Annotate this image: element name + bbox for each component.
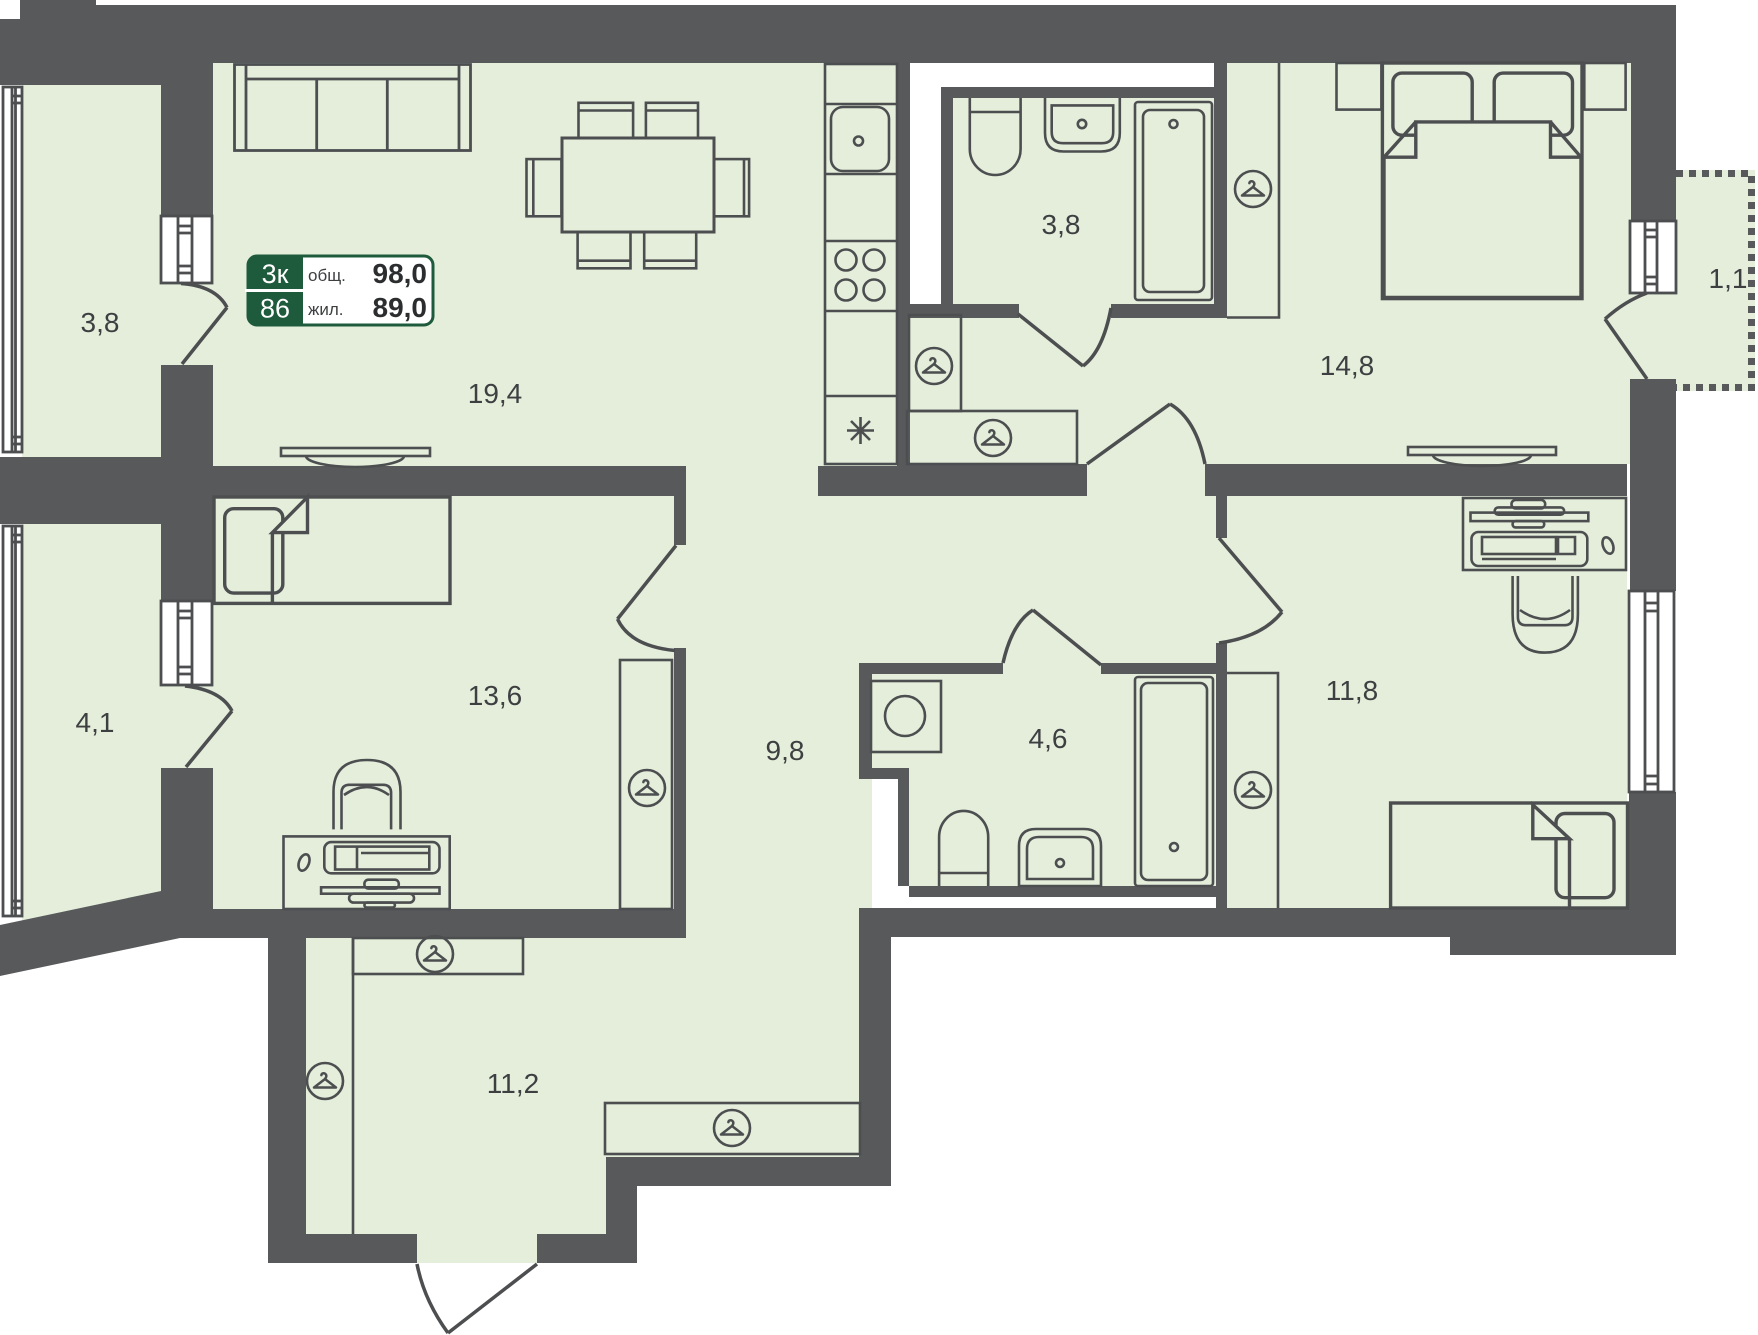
svg-text:14,8: 14,8 [1320,350,1375,381]
svg-text:98,0: 98,0 [373,258,428,289]
svg-text:3,8: 3,8 [81,307,120,338]
svg-text:9,8: 9,8 [766,735,805,766]
svg-text:11,8: 11,8 [1326,675,1378,706]
svg-text:общ.: общ. [308,266,346,285]
svg-text:86: 86 [260,294,290,324]
svg-text:4,1: 4,1 [76,707,115,738]
svg-text:89,0: 89,0 [373,292,428,323]
svg-text:3,8: 3,8 [1042,209,1081,240]
svg-text:11,2: 11,2 [487,1068,539,1099]
svg-text:13,6: 13,6 [468,680,523,711]
svg-text:19,4: 19,4 [468,378,523,409]
svg-text:1,1: 1,1 [1709,263,1748,294]
svg-text:4,6: 4,6 [1029,723,1068,754]
svg-text:3к: 3к [262,259,289,289]
svg-text:жил.: жил. [308,300,344,319]
